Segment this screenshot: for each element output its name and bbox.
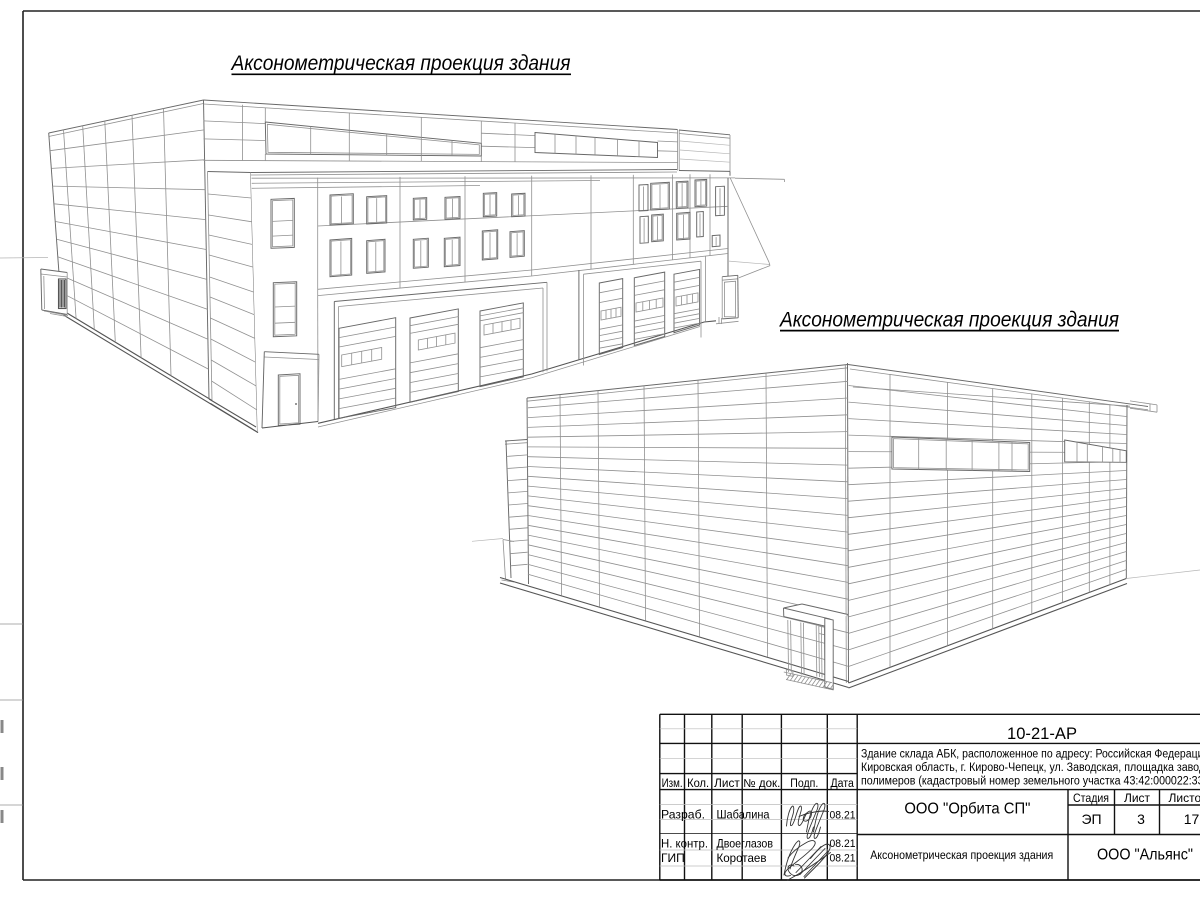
svg-text:Разраб.: Разраб. bbox=[661, 808, 705, 822]
svg-text:10-21-АР: 10-21-АР bbox=[1007, 724, 1077, 743]
svg-text:Стадия: Стадия bbox=[1073, 791, 1109, 805]
svg-text:№ док.: № док. bbox=[743, 778, 780, 790]
svg-text:полимеров (кадастровый номер з: полимеров (кадастровый номер земельного … bbox=[861, 775, 1200, 787]
svg-text:17: 17 bbox=[1184, 811, 1200, 827]
svg-text:Аксонометрическая проекция зда: Аксонометрическая проекция здания bbox=[778, 309, 1119, 332]
svg-text:Здание склада АБК, расположенн: Здание склада АБК, расположенное по адре… bbox=[861, 749, 1200, 761]
svg-text:Лист: Лист bbox=[714, 778, 740, 790]
svg-text:Аксонометрическая проекция зда: Аксонометрическая проекция здания bbox=[870, 848, 1053, 862]
svg-text:Кировская область, г. Кирово-Ч: Кировская область, г. Кирово-Чепецк, ул.… bbox=[861, 762, 1200, 774]
svg-text:Шабалина: Шабалина bbox=[717, 808, 770, 822]
svg-text:Дата: Дата bbox=[831, 778, 855, 790]
svg-text:08.21: 08.21 bbox=[830, 853, 856, 865]
svg-text:Лист: Лист bbox=[1124, 791, 1151, 805]
svg-text:ЭП: ЭП bbox=[1081, 811, 1101, 827]
svg-text:Изм.: Изм. bbox=[662, 778, 683, 790]
svg-text:3: 3 bbox=[1137, 811, 1145, 827]
svg-text:Двоеглазов: Двоеглазов bbox=[717, 837, 774, 851]
svg-text:Подп.: Подп. bbox=[790, 778, 818, 790]
svg-text:Аксонометрическая проекция зда: Аксонометрическая проекция здания bbox=[230, 52, 571, 75]
svg-text:Листов: Листов bbox=[1169, 791, 1200, 805]
svg-text:08.21: 08.21 bbox=[830, 838, 856, 850]
svg-text:Н. контр.: Н. контр. bbox=[661, 837, 708, 851]
svg-text:08.21: 08.21 bbox=[830, 810, 856, 822]
svg-text:ООО "Орбита СП": ООО "Орбита СП" bbox=[904, 801, 1030, 818]
svg-text:ГИП: ГИП bbox=[661, 851, 685, 865]
svg-text:ООО "Альянс": ООО "Альянс" bbox=[1097, 847, 1193, 864]
svg-text:Кол.: Кол. bbox=[687, 778, 709, 790]
svg-text:Коротаев: Коротаев bbox=[717, 851, 767, 865]
